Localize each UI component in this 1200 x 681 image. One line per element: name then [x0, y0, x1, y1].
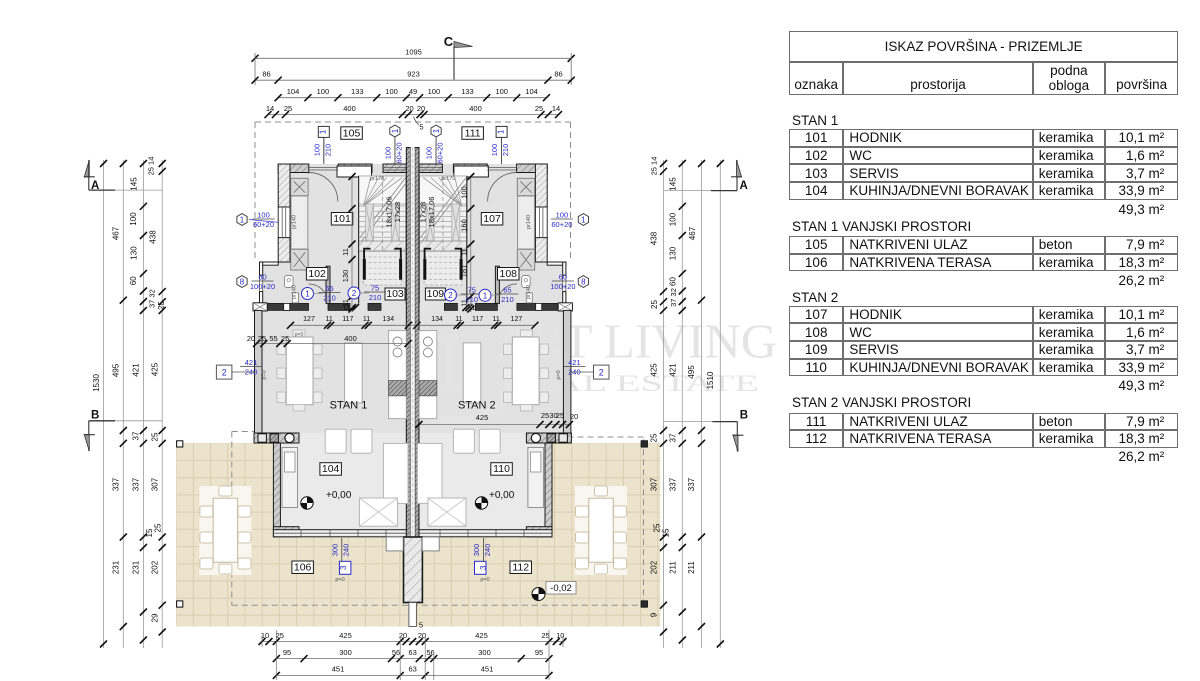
svg-text:25: 25 [157, 301, 166, 310]
svg-text:86: 86 [262, 70, 270, 79]
svg-text:60: 60 [129, 276, 138, 285]
svg-text:400: 400 [343, 104, 356, 113]
svg-text:37 32: 37 32 [148, 289, 157, 308]
svg-text:211: 211 [669, 561, 678, 574]
svg-text:1: 1 [496, 129, 505, 134]
svg-text:+0,00: +0,00 [326, 490, 352, 501]
svg-text:425: 425 [475, 631, 488, 640]
svg-text:63: 63 [409, 648, 417, 657]
svg-text:25: 25 [150, 432, 159, 441]
svg-text:127: 127 [303, 316, 315, 323]
svg-text:49: 49 [409, 87, 417, 96]
svg-text:14: 14 [266, 104, 274, 113]
svg-text:11: 11 [326, 316, 333, 323]
svg-text:133: 133 [461, 87, 474, 96]
svg-text:25 14: 25 14 [147, 157, 156, 176]
svg-text:210: 210 [501, 295, 514, 304]
svg-text:100: 100 [383, 147, 392, 160]
svg-text:421: 421 [669, 363, 678, 377]
svg-text:25: 25 [281, 334, 289, 343]
svg-text:STAN 2: STAN 2 [458, 400, 496, 412]
svg-text:p=0: p=0 [335, 577, 344, 583]
svg-text:A: A [91, 180, 99, 192]
svg-text:-0,02: -0,02 [550, 583, 572, 594]
svg-text:421: 421 [568, 358, 581, 367]
svg-text:101: 101 [333, 213, 351, 225]
svg-text:451: 451 [481, 665, 494, 674]
svg-text:100: 100 [317, 87, 330, 96]
svg-text:421: 421 [245, 358, 258, 367]
svg-text:211: 211 [687, 561, 696, 574]
svg-text:A: A [740, 180, 748, 192]
svg-text:181: 181 [460, 265, 469, 278]
svg-text:103: 103 [386, 288, 404, 300]
svg-text:127: 127 [511, 316, 523, 323]
svg-text:421: 421 [132, 363, 141, 377]
svg-text:202: 202 [650, 560, 659, 574]
svg-text:37: 37 [669, 433, 678, 442]
svg-text:pr170: pr170 [370, 176, 384, 182]
svg-text:1: 1 [581, 216, 586, 225]
svg-text:11: 11 [455, 316, 462, 323]
svg-text:106: 106 [294, 562, 312, 574]
svg-text:17x28: 17x28 [393, 202, 402, 222]
svg-text:25: 25 [535, 104, 543, 113]
svg-text:pr140: pr140 [292, 285, 298, 299]
svg-text:1: 1 [391, 128, 400, 133]
svg-text:425: 425 [650, 363, 659, 377]
svg-text:p=0: p=0 [480, 577, 489, 583]
svg-text:145: 145 [669, 177, 678, 191]
svg-text:438: 438 [149, 230, 158, 244]
svg-text:1530: 1530 [92, 374, 101, 392]
svg-text:3: 3 [479, 565, 488, 570]
svg-text:240: 240 [341, 544, 350, 557]
svg-text:1: 1 [240, 216, 245, 225]
svg-text:100+20: 100+20 [250, 282, 275, 291]
svg-text:55: 55 [269, 334, 277, 343]
svg-text:111: 111 [465, 127, 481, 139]
svg-text:134: 134 [431, 316, 443, 323]
svg-text:60+20: 60+20 [394, 142, 403, 163]
svg-text:pr140: pr140 [526, 215, 532, 229]
svg-text:pr140: pr140 [292, 215, 298, 229]
svg-text:20: 20 [247, 334, 255, 343]
svg-text:1: 1 [483, 291, 488, 300]
svg-text:1095: 1095 [405, 48, 422, 57]
svg-text:133: 133 [351, 87, 364, 96]
svg-text:60+20: 60+20 [436, 142, 445, 163]
svg-text:20: 20 [417, 104, 425, 113]
svg-text:134: 134 [382, 316, 394, 323]
svg-text:20: 20 [405, 104, 413, 113]
svg-text:467: 467 [688, 226, 697, 240]
svg-text:60: 60 [258, 273, 266, 282]
svg-text:pr140: pr140 [526, 285, 532, 299]
svg-text:210: 210 [369, 293, 382, 302]
svg-text:65: 65 [325, 284, 333, 293]
svg-text:11: 11 [363, 316, 370, 323]
svg-text:1510: 1510 [706, 371, 715, 389]
svg-text:25: 25 [650, 300, 659, 309]
svg-text:109: 109 [427, 288, 445, 300]
svg-text:15: 15 [662, 528, 671, 537]
svg-text:110: 110 [493, 463, 510, 475]
svg-text:5: 5 [419, 123, 423, 132]
svg-text:100+20: 100+20 [550, 282, 575, 291]
svg-text:25: 25 [650, 433, 659, 442]
svg-text:337: 337 [111, 477, 120, 491]
svg-text:56: 56 [426, 648, 434, 657]
svg-text:105: 105 [343, 127, 361, 139]
svg-text:p=0: p=0 [262, 370, 268, 379]
svg-text:20: 20 [570, 412, 578, 421]
svg-text:337: 337 [687, 477, 696, 491]
svg-text:B: B [91, 409, 99, 421]
svg-text:8: 8 [581, 278, 586, 287]
svg-text:100: 100 [428, 87, 441, 96]
svg-text:923: 923 [407, 70, 420, 79]
svg-text:100: 100 [495, 87, 508, 96]
svg-text:60: 60 [669, 277, 678, 286]
svg-text:145: 145 [130, 177, 139, 191]
svg-text:104: 104 [287, 87, 300, 96]
svg-text:1: 1 [305, 290, 310, 299]
svg-text:65: 65 [503, 286, 511, 295]
svg-text:104: 104 [322, 463, 340, 475]
svg-text:+0,00: +0,00 [489, 490, 515, 501]
svg-text:25: 25 [541, 411, 549, 420]
svg-text:117: 117 [472, 316, 483, 323]
svg-text:60: 60 [559, 273, 567, 282]
svg-text:2: 2 [222, 368, 227, 378]
svg-text:1: 1 [432, 128, 441, 133]
svg-text:100: 100 [129, 212, 138, 226]
svg-text:25: 25 [258, 334, 266, 343]
svg-text:63: 63 [409, 665, 417, 674]
svg-text:2: 2 [448, 291, 453, 300]
svg-text:337: 337 [132, 477, 141, 491]
svg-text:307: 307 [650, 477, 659, 491]
svg-text:210: 210 [466, 295, 479, 304]
svg-text:337: 337 [669, 477, 678, 491]
svg-text:425: 425 [150, 362, 159, 376]
svg-text:C: C [444, 34, 454, 49]
svg-text:25: 25 [284, 104, 292, 113]
svg-text:240: 240 [483, 544, 492, 557]
svg-text:130: 130 [669, 246, 678, 260]
svg-text:100: 100 [425, 147, 434, 160]
svg-text:438: 438 [650, 231, 659, 245]
svg-text:100: 100 [257, 211, 270, 220]
svg-text:400: 400 [469, 104, 482, 113]
svg-text:100: 100 [556, 211, 569, 220]
svg-text:95: 95 [535, 648, 543, 657]
svg-text:210: 210 [323, 294, 336, 303]
svg-text:100: 100 [460, 186, 469, 199]
svg-text:pr170: pr170 [441, 176, 455, 182]
svg-text:9: 9 [650, 612, 659, 617]
svg-text:112: 112 [512, 562, 529, 574]
svg-text:37: 37 [132, 431, 141, 440]
svg-text:231: 231 [132, 560, 141, 574]
svg-text:100: 100 [385, 87, 398, 96]
svg-text:300: 300 [472, 544, 481, 557]
svg-text:25: 25 [276, 631, 284, 640]
svg-text:102: 102 [308, 268, 326, 280]
svg-text:495: 495 [111, 363, 120, 377]
svg-text:STAN 1: STAN 1 [330, 400, 368, 412]
svg-text:210: 210 [323, 144, 332, 157]
svg-text:400: 400 [344, 334, 357, 343]
svg-text:451: 451 [332, 665, 345, 674]
svg-text:p=0: p=0 [556, 370, 562, 379]
svg-text:2: 2 [599, 368, 604, 378]
svg-text:5: 5 [419, 621, 423, 630]
svg-text:95: 95 [283, 648, 291, 657]
svg-text:25: 25 [541, 631, 549, 640]
svg-text:1: 1 [319, 129, 328, 134]
svg-text:495: 495 [687, 365, 696, 379]
svg-text:300: 300 [330, 544, 339, 557]
svg-text:25: 25 [556, 411, 564, 420]
svg-text:11: 11 [460, 248, 469, 256]
svg-text:p=0: p=0 [295, 332, 304, 338]
svg-text:130: 130 [341, 270, 350, 283]
svg-text:2: 2 [352, 289, 357, 298]
svg-text:25 14: 25 14 [650, 157, 659, 176]
svg-text:11: 11 [493, 316, 500, 323]
svg-text:3: 3 [339, 565, 348, 570]
svg-text:210: 210 [501, 144, 510, 157]
svg-text:307: 307 [150, 477, 159, 491]
svg-text:11: 11 [341, 248, 350, 256]
svg-text:100: 100 [490, 144, 499, 157]
svg-text:202: 202 [150, 560, 159, 574]
svg-text:108: 108 [499, 268, 517, 280]
svg-text:117: 117 [342, 316, 353, 323]
svg-text:104: 104 [525, 87, 538, 96]
svg-text:18x17,06: 18x17,06 [427, 197, 436, 228]
svg-text:425: 425 [339, 631, 352, 640]
svg-text:107: 107 [483, 213, 501, 225]
svg-text:37 32: 37 32 [669, 288, 678, 307]
svg-text:100: 100 [669, 212, 678, 226]
svg-text:8: 8 [240, 278, 245, 287]
svg-text:300: 300 [339, 648, 352, 657]
svg-text:17x28: 17x28 [418, 202, 427, 222]
svg-text:300: 300 [478, 648, 491, 657]
svg-text:75: 75 [468, 286, 476, 295]
svg-text:11: 11 [341, 299, 350, 307]
svg-text:60+20: 60+20 [551, 220, 572, 229]
svg-text:231: 231 [111, 560, 120, 574]
svg-text:75: 75 [371, 284, 379, 293]
svg-text:B: B [740, 410, 748, 422]
svg-text:29: 29 [150, 613, 159, 622]
svg-text:14: 14 [552, 104, 560, 113]
svg-text:160: 160 [460, 219, 469, 232]
svg-text:25: 25 [154, 523, 163, 532]
svg-text:100: 100 [312, 144, 321, 157]
svg-text:467: 467 [111, 226, 120, 240]
svg-text:130: 130 [129, 246, 138, 260]
svg-text:56: 56 [392, 648, 400, 657]
svg-text:86: 86 [554, 70, 562, 79]
svg-text:25: 25 [653, 523, 662, 532]
svg-text:425: 425 [476, 413, 489, 422]
